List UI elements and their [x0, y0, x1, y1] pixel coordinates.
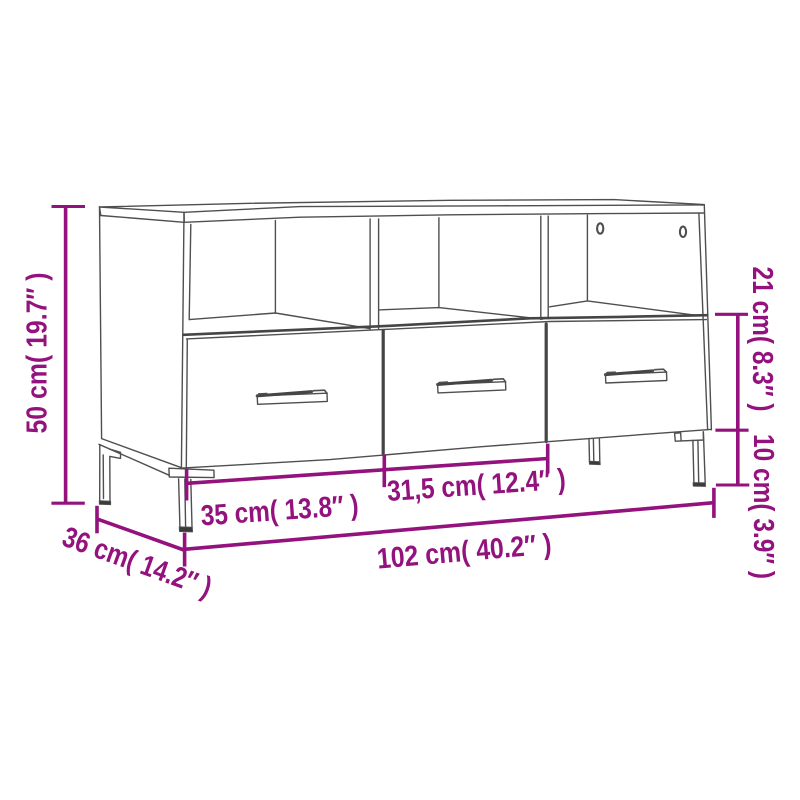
svg-text:35 cm( 13.8″ ): 35 cm( 13.8″ ) — [200, 490, 360, 533]
svg-text:102 cm( 40.2″ ): 102 cm( 40.2″ ) — [376, 528, 553, 575]
svg-text:21 cm( 8.3″ ): 21 cm( 8.3″ ) — [746, 267, 778, 412]
svg-text:50 cm( 19.7″ ): 50 cm( 19.7″ ) — [21, 273, 53, 434]
svg-text:10 cm( 3.9″ ): 10 cm( 3.9″ ) — [747, 434, 779, 579]
svg-text:31,5 cm( 12.4″ ): 31,5 cm( 12.4″ ) — [386, 464, 567, 508]
